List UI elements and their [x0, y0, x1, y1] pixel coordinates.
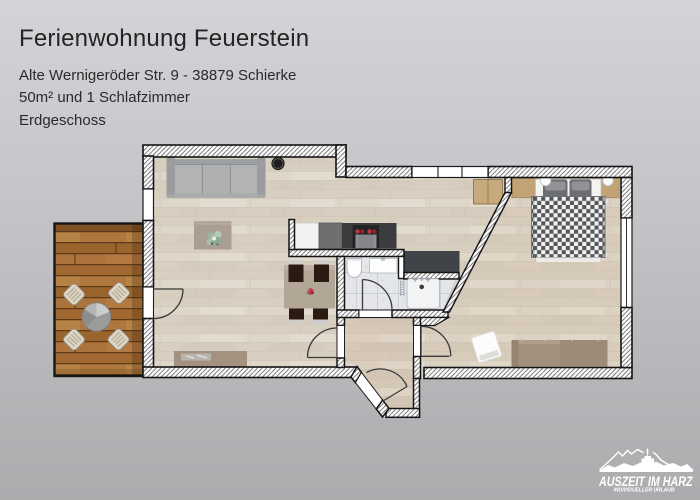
svg-text:INDIVIDUELLER URLAUB: INDIVIDUELLER URLAUB: [614, 488, 675, 494]
